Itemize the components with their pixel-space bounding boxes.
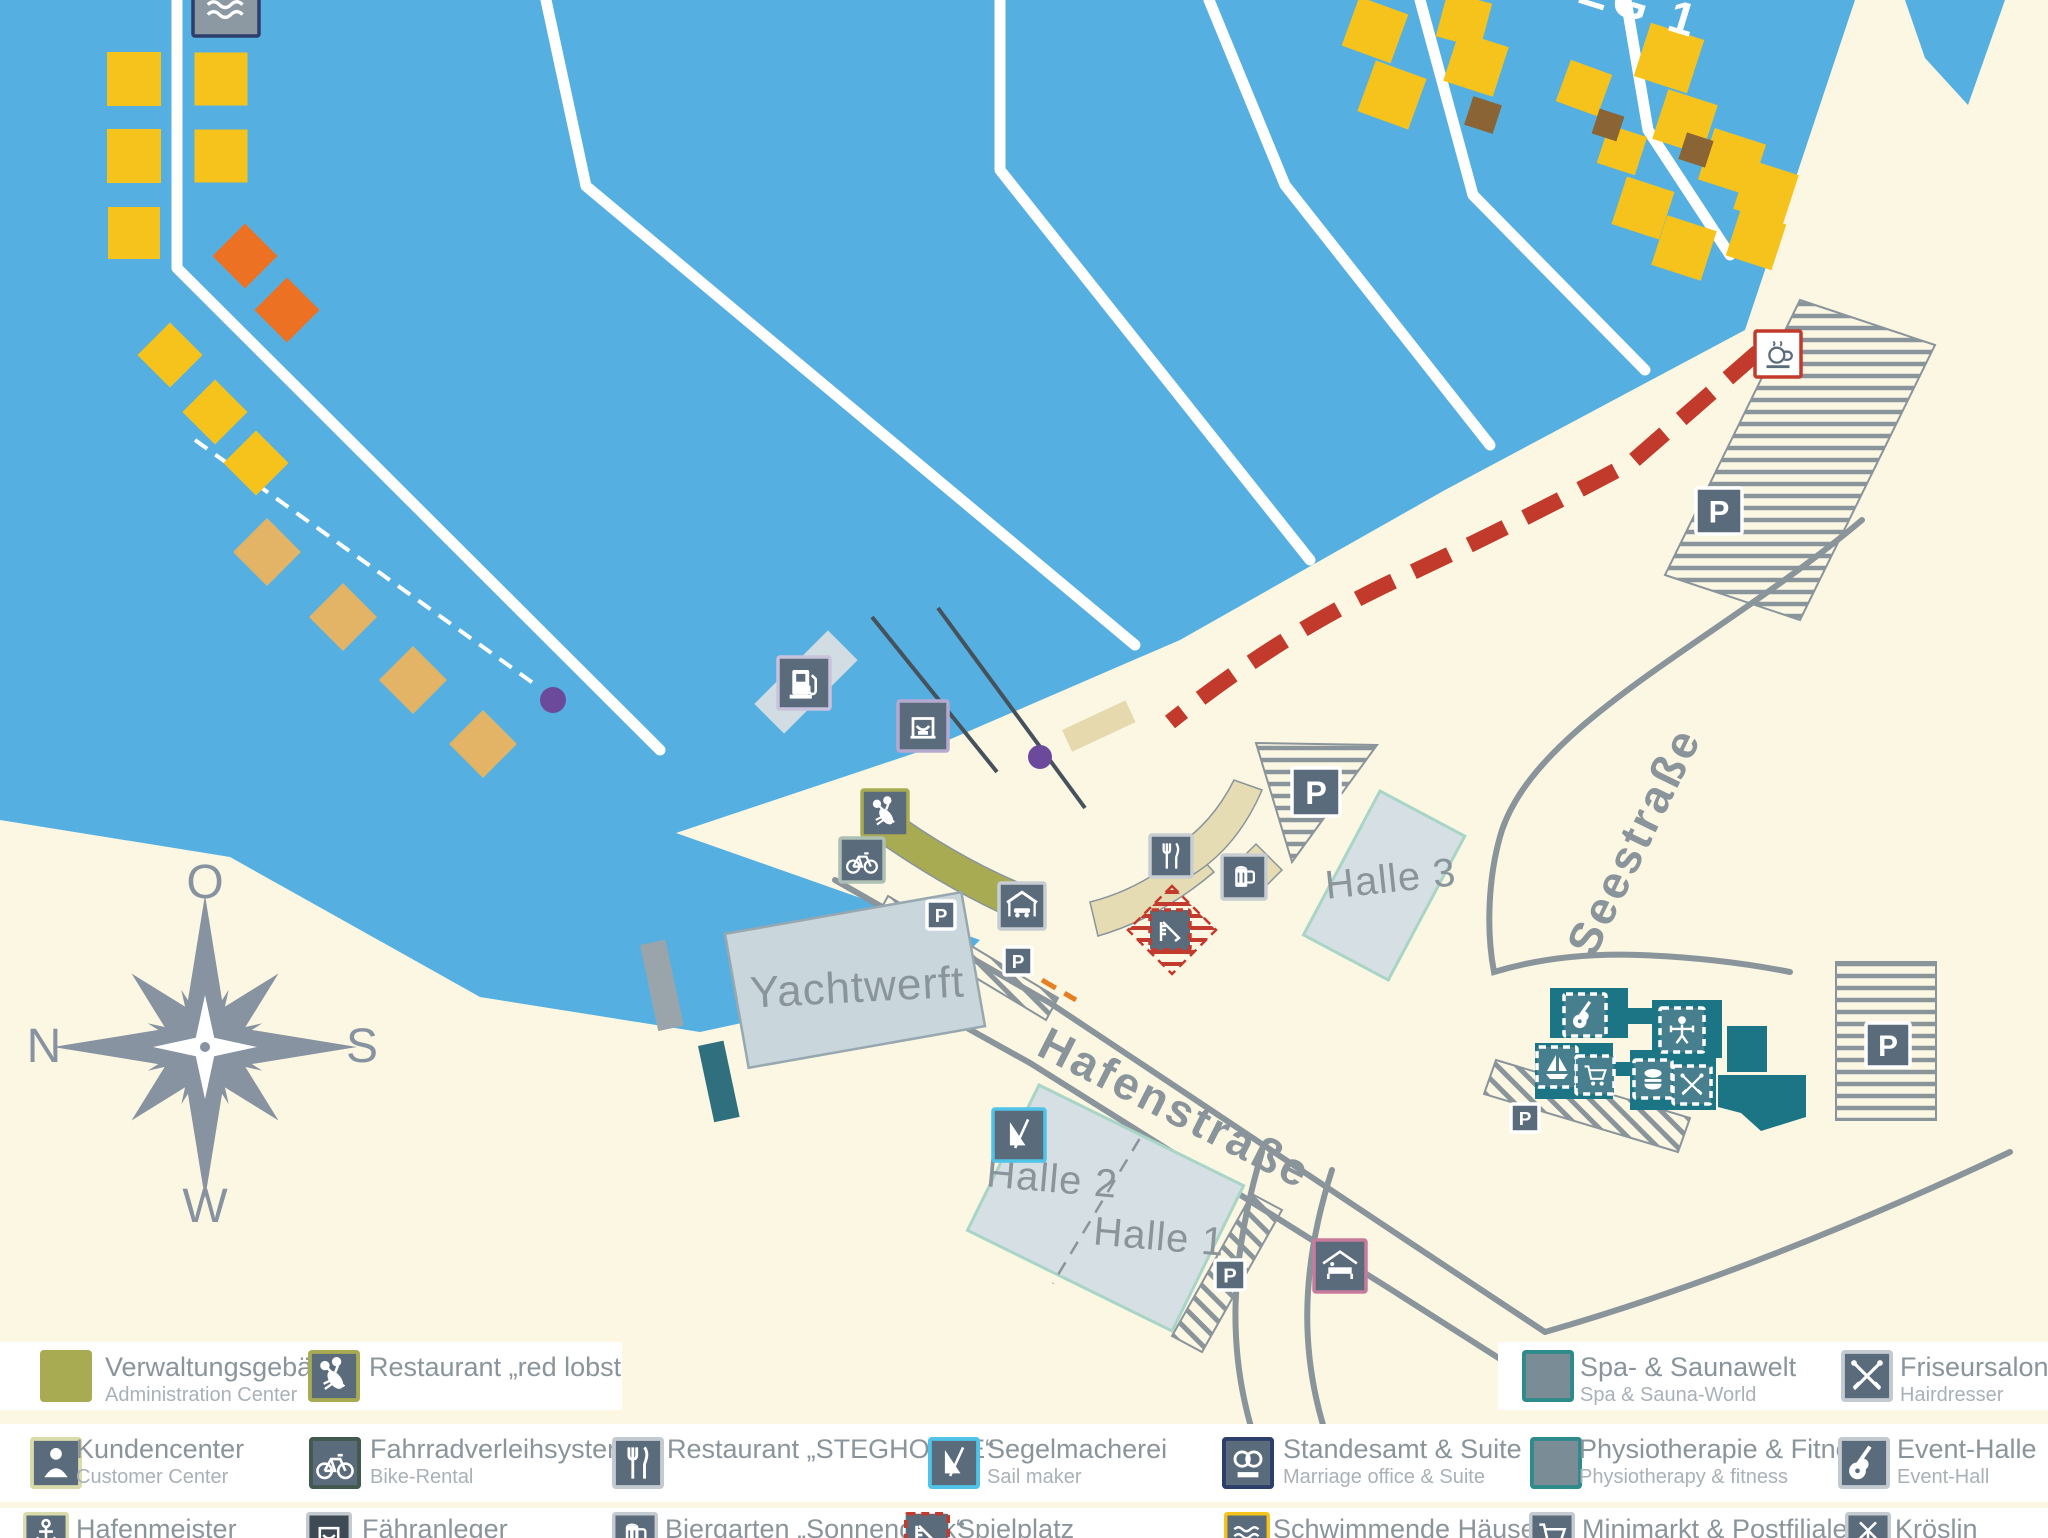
- legend-icon-minimarkt-postfiliale-icon: [1529, 1512, 1575, 1538]
- event-halle-icon: [1564, 994, 1606, 1036]
- legend-title-kroeslin: Kröslin: [1895, 1514, 1978, 1538]
- purple-marker-1: [540, 687, 566, 713]
- legend-title-faehranleger: Fähranleger: [362, 1514, 508, 1538]
- compass-south-label: S: [346, 1020, 378, 1073]
- building-connector-1: [1625, 1008, 1655, 1024]
- legend-icon-kundencenter-icon: [30, 1437, 82, 1489]
- parking-icon-hafenstrasse: P: [1215, 1260, 1245, 1290]
- legend-subtitle-fahrradverleihsystem: Bike-Rental: [370, 1466, 473, 1489]
- svg-text:P: P: [1878, 1030, 1898, 1063]
- legend-band-row-1: VerwaltungsgebäudeAdministration CenterR…: [0, 1342, 622, 1410]
- compass-west-label: W: [182, 1180, 228, 1233]
- legend-title-event-halle: Event-Halle: [1897, 1434, 2037, 1465]
- pension-icon: [1314, 1240, 1366, 1292]
- biergarten-icon: [1222, 855, 1266, 899]
- red-lobster-icon: [862, 790, 908, 836]
- svg-text:P: P: [1223, 1266, 1237, 1288]
- parking-icon-northeast: P: [1696, 488, 1742, 534]
- legend-band-row-1: Spa- & SaunaweltSpa & Sauna-WorldFriseur…: [1498, 1342, 2048, 1410]
- ferry-terminal-icon: [898, 701, 948, 751]
- schwimmende-haeuser-icon: [193, 0, 259, 36]
- legend-band-row-2: KundencenterCustomer CenterFahrradverlei…: [0, 1424, 2048, 1502]
- legend-icon-fahrradverleihsystem-icon: [309, 1437, 361, 1489]
- legend-icon-segelmacherei-icon: [928, 1437, 980, 1489]
- burger-icon: [1634, 1060, 1672, 1098]
- legend-subtitle-physiotherapie-fitness: Physiotherapy & fitness: [1579, 1466, 1788, 1489]
- parking-icon-halle3: P: [1292, 768, 1340, 816]
- legend-icon-schwimmende-haeuser-icon: [1224, 1512, 1270, 1538]
- legend-title-hafenmeister: Hafenmeister: [76, 1514, 237, 1538]
- svg-text:P: P: [1519, 1109, 1532, 1130]
- carport-icon: [999, 883, 1045, 929]
- legend-band-row-3: HafenmeisterFähranlegerBiergarten „Sonne…: [0, 1508, 2048, 1538]
- legend-subtitle-friseursalon: Hairdresser: [1900, 1384, 2003, 1407]
- legend-title-restaurant-red-lobster: Restaurant „red lobster“: [369, 1352, 622, 1383]
- legend-subtitle-event-halle: Event-Hall: [1897, 1466, 1989, 1489]
- parking-icon-seestrasse: P: [1511, 1104, 1539, 1132]
- legend-icon-physiotherapie-fitness-icon: [1530, 1437, 1582, 1489]
- building-spa-small: [1727, 1026, 1767, 1072]
- compass-east-label: O: [186, 856, 223, 909]
- floating-house-gold: [195, 130, 248, 183]
- floating-house-gold: [107, 52, 161, 106]
- svg-text:P: P: [1709, 495, 1730, 530]
- legend-title-kundencenter: Kundencenter: [76, 1434, 244, 1465]
- legend-subtitle-standesamt-suite: Marriage office & Suite: [1283, 1466, 1485, 1489]
- legend-title-standesamt-suite: Standesamt & Suite: [1283, 1434, 1522, 1465]
- segelmacherei-icon: [993, 1109, 1045, 1161]
- legend-icon-biergarten-sonnendeck-icon: [612, 1512, 658, 1538]
- physiotherapie-icon: [1660, 1008, 1704, 1052]
- legend-subtitle-segelmacherei: Sail maker: [987, 1466, 1081, 1489]
- legend-icon-friseursalon-icon: [1841, 1350, 1893, 1402]
- fuel-station-icon: [778, 657, 830, 709]
- parking-icon-quay-1: P: [927, 901, 955, 929]
- legend-icon-restaurant-steghouse-icon: [612, 1437, 664, 1489]
- legend-title-minimarkt-postfiliale: Minimarkt & Postfiliale: [1582, 1514, 1848, 1538]
- floating-house-gold: [108, 207, 160, 259]
- friseursalon-icon: [1673, 1066, 1711, 1104]
- bike-rental-icon: [840, 838, 884, 882]
- legend-title-spielplatz: Spielplatz: [957, 1514, 1074, 1538]
- compass-north-label: N: [27, 1020, 62, 1073]
- legend-subtitle-spa-saunawelt: Spa & Sauna-World: [1580, 1384, 1756, 1407]
- legend-icon-standesamt-suite-icon: [1222, 1437, 1274, 1489]
- map-svg: O N S W STEG 1 Yachtwerft Halle 2 Halle …: [0, 0, 2048, 1538]
- legend-title-schwimmende-haeuser: Schwimmende Häuser: [1273, 1514, 1545, 1538]
- steghouse-restaurant-icon: [1150, 835, 1192, 877]
- svg-text:P: P: [1305, 775, 1327, 811]
- purple-marker-2: [1028, 745, 1052, 769]
- legend-title-segelmacherei: Segelmacherei: [987, 1434, 1167, 1465]
- marina-map: O N S W STEG 1 Yachtwerft Halle 2 Halle …: [0, 0, 2048, 1538]
- legend-title-physiotherapie-fitness: Physiotherapie & Fitness: [1579, 1434, 1878, 1465]
- svg-text:P: P: [935, 906, 948, 927]
- legend-title-fahrradverleihsystem: Fahrradverleihsystem: [370, 1434, 630, 1465]
- spielplatz-icon: [1150, 910, 1190, 950]
- legend-icon-kroeslin-icon: [1845, 1512, 1891, 1538]
- floating-house-gold: [195, 53, 248, 106]
- legend-icon-faehranleger-icon: [306, 1512, 352, 1538]
- legend-icon-hafenmeister-icon: [23, 1512, 69, 1538]
- parking-icon-quay-2: P: [1004, 947, 1032, 975]
- legend-icon-event-halle-icon: [1838, 1437, 1890, 1489]
- sailboat-icon: [1537, 1047, 1577, 1087]
- legend-subtitle-kundencenter: Customer Center: [76, 1466, 228, 1489]
- svg-text:P: P: [1012, 952, 1025, 973]
- minimarkt-icon: [1576, 1056, 1614, 1094]
- legend-title-friseursalon: Friseursalon: [1900, 1352, 2048, 1383]
- cafe-icon: [1755, 331, 1801, 377]
- floating-house-gold: [107, 129, 161, 183]
- parking-icon-east: P: [1866, 1023, 1910, 1067]
- legend-icon-verwaltungsgebaeude-icon: [40, 1350, 92, 1402]
- legend-subtitle-verwaltungsgebaeude: Administration Center: [105, 1384, 297, 1407]
- legend-icon-spa-saunawelt-icon: [1522, 1350, 1574, 1402]
- legend-icon-spielplatz-icon: [904, 1512, 950, 1538]
- legend-title-spa-saunawelt: Spa- & Saunawelt: [1580, 1352, 1796, 1383]
- legend-icon-restaurant-red-lobster-icon: [308, 1350, 360, 1402]
